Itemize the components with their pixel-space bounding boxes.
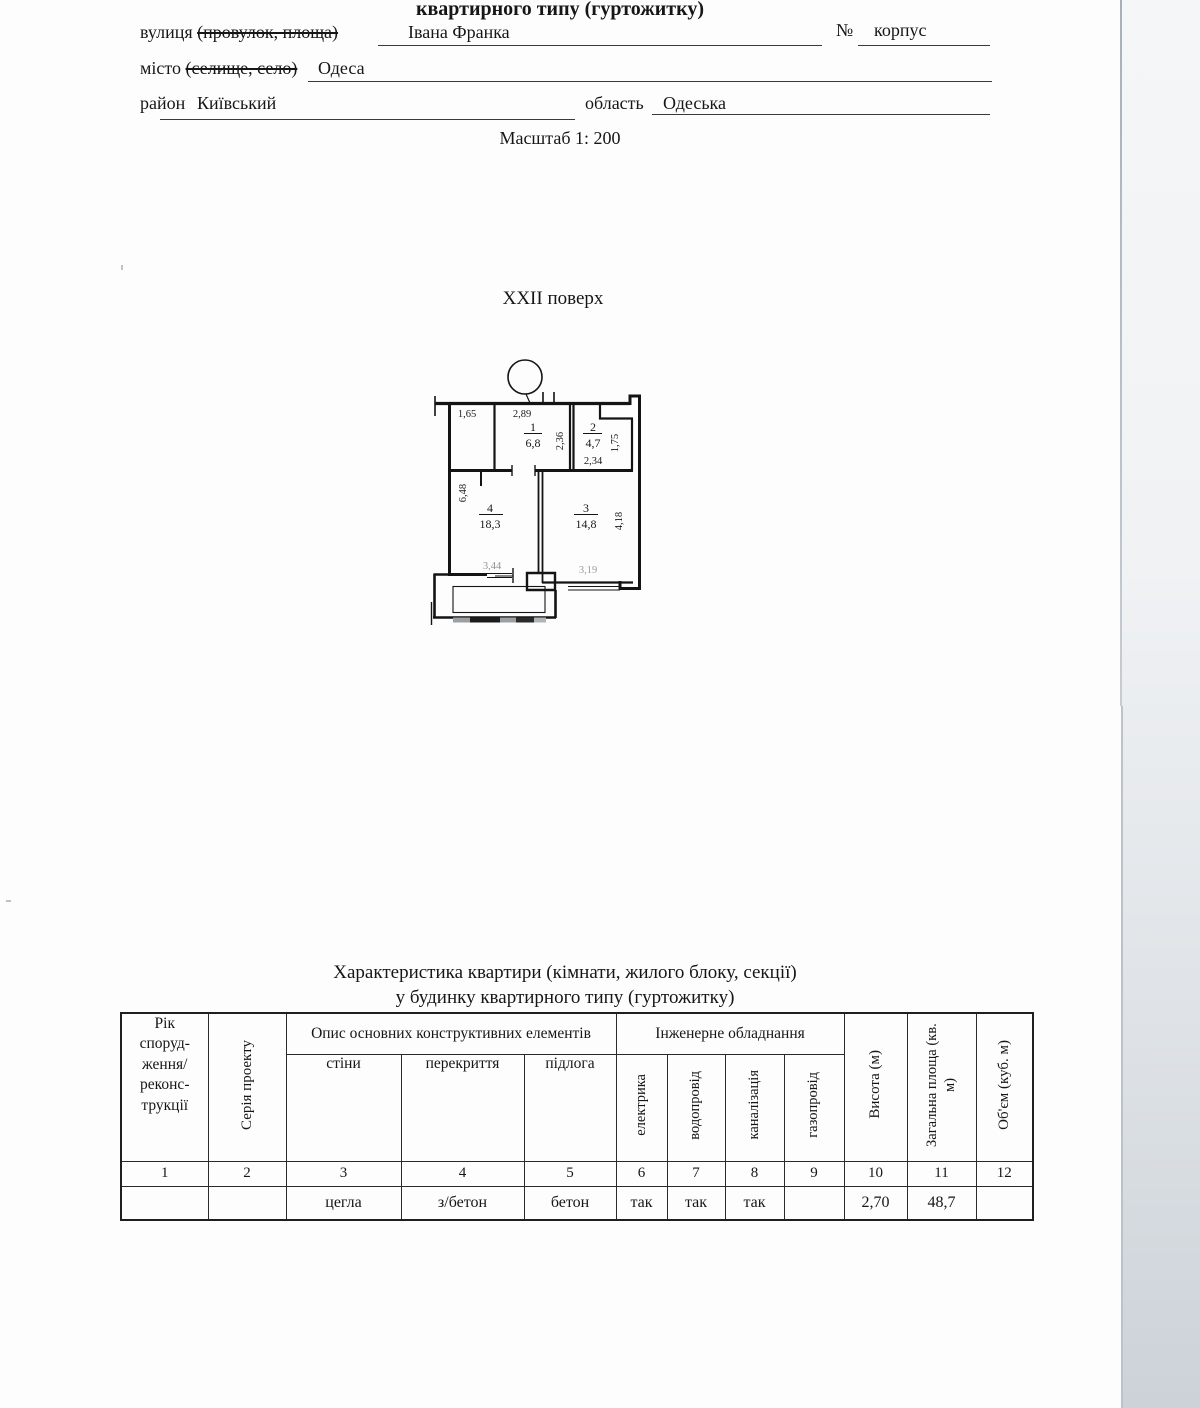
value-walls: цегла: [286, 1186, 401, 1220]
dim-label: 4,18: [614, 512, 625, 530]
value-ceiling: з/бетон: [401, 1186, 524, 1220]
th-electric-text: електрика: [634, 1074, 650, 1136]
th-construct-group: Опис основних конструктивних елементів: [286, 1013, 616, 1054]
th-gas-text: газопровід: [806, 1072, 822, 1138]
street-label: вулиця (провулок, площа): [140, 22, 338, 43]
city-underline: [308, 81, 992, 82]
scan-artifact: [121, 265, 123, 270]
th-volume: Об'єм (куб. м): [976, 1013, 1033, 1161]
dim-label: 1,65: [458, 409, 476, 420]
dim-label: 1,75: [610, 434, 621, 452]
values-row: цегла з/бетон бетон так так так 2,70 48,…: [121, 1186, 1033, 1220]
th-electric: електрика: [616, 1054, 667, 1161]
scale-label: Масштаб 1: 200: [460, 128, 660, 149]
th-height-text: Висота (м): [867, 1050, 884, 1119]
oblast-value: Одеська: [663, 93, 726, 114]
oblast-label: область: [585, 93, 644, 114]
oblast-underline: [652, 114, 990, 115]
col-number: 8: [725, 1161, 784, 1186]
value-height: 2,70: [844, 1186, 907, 1220]
city-label-word: місто: [140, 58, 181, 78]
th-volume-text: Об'єм (куб. м): [996, 1040, 1013, 1130]
th-engineering-group: Інженерне обладнання: [616, 1013, 844, 1054]
room2-number: 2: [590, 420, 596, 434]
street-value: Івана Франка: [408, 22, 510, 43]
th-sewer: каналізація: [725, 1054, 784, 1161]
document-title: квартирного типу (гуртожитку): [300, 0, 820, 21]
dim-label: 2,36: [555, 432, 566, 450]
floor-plan-drawing: 1,65 2,89 1 6,8 2,36 2 4,7 2,34 1,75 6,4…: [420, 340, 670, 650]
city-label: місто (селище, село): [140, 58, 297, 79]
value-water: так: [667, 1186, 725, 1220]
page-edge-line: [1120, 0, 1122, 706]
th-floor: підлога: [524, 1054, 616, 1161]
room1-area: 6,8: [526, 436, 541, 450]
value-electric: так: [616, 1186, 667, 1220]
value-sewer: так: [725, 1186, 784, 1220]
number-label: №: [836, 20, 853, 41]
th-series-text: Серія проекту: [239, 1040, 256, 1130]
floor-title: XXII поверх: [453, 288, 653, 310]
window-lines-room3: [568, 587, 620, 591]
room4-area: 18,3: [480, 517, 501, 531]
korpus-underline: [858, 45, 990, 46]
district-value: Київський: [197, 93, 276, 114]
col-number: 1: [121, 1161, 208, 1186]
street-underline: [378, 45, 822, 46]
page-edge-line-lower: [1121, 706, 1123, 1408]
scan-artifact: [6, 900, 11, 902]
table-title-line1: Характеристика квартири (кімнати, жилого…: [265, 962, 865, 984]
th-series: Серія проекту: [208, 1013, 286, 1161]
room1-number: 1: [530, 420, 536, 434]
col-number: 2: [208, 1161, 286, 1186]
col-number: 11: [907, 1161, 976, 1186]
col-number: 7: [667, 1161, 725, 1186]
th-sewer-text: каналізація: [747, 1070, 763, 1139]
table-title-line2: у будинку квартирного типу (гуртожитку): [265, 987, 865, 1009]
th-total-area: Загальна площа (кв. м): [907, 1013, 976, 1161]
city-struck-words: (селище, село): [186, 58, 298, 78]
value-total-area: 48,7: [907, 1186, 976, 1220]
korpus-label: корпус: [874, 20, 926, 41]
room3-area: 14,8: [576, 517, 597, 531]
col-number: 4: [401, 1161, 524, 1186]
th-ceiling: перекриття: [401, 1054, 524, 1161]
th-height: Висота (м): [844, 1013, 907, 1161]
dim-label: 3,44: [483, 561, 502, 572]
district-label: район: [140, 93, 185, 114]
column-number-row: 1 2 3 4 5 6 7 8 9 10 11 12: [121, 1161, 1033, 1186]
col-number: 3: [286, 1161, 401, 1186]
col-number: 6: [616, 1161, 667, 1186]
value-volume: [976, 1186, 1033, 1220]
value-floor: бетон: [524, 1186, 616, 1220]
city-value: Одеса: [318, 58, 365, 79]
value-year: [121, 1186, 208, 1220]
th-water-text: водопровід: [688, 1071, 704, 1140]
value-series: [208, 1186, 286, 1220]
dim-label: 3,19: [579, 565, 597, 576]
page-edge-shading: [1122, 0, 1200, 1408]
room3-number: 3: [583, 501, 589, 515]
col-number: 10: [844, 1161, 907, 1186]
dim-label: 6,48: [458, 484, 469, 502]
th-year: Рік споруд- ження/ реконс- трукції: [121, 1013, 208, 1161]
value-gas: [784, 1186, 844, 1220]
room2-area: 4,7: [586, 436, 601, 450]
balcony-hatch: [453, 618, 546, 623]
street-label-word: вулиця: [140, 22, 193, 42]
col-number: 5: [524, 1161, 616, 1186]
th-total-area-text: Загальна площа (кв. м): [923, 1017, 959, 1153]
dim-label: 2,89: [513, 409, 531, 420]
district-underline: [160, 119, 575, 120]
entry-door-ticks: [543, 392, 554, 403]
street-struck-words: (провулок, площа): [197, 22, 338, 42]
col-number: 9: [784, 1161, 844, 1186]
col-number: 12: [976, 1161, 1033, 1186]
ventilation-shaft-circle: [508, 360, 542, 394]
dim-label: 2,34: [584, 456, 603, 467]
room4-number: 4: [487, 501, 493, 515]
th-gas: газопровід: [784, 1054, 844, 1161]
scanned-document-page: квартирного типу (гуртожитку) вулиця (пр…: [0, 0, 1200, 1408]
balcony-outline: [433, 574, 556, 618]
characteristics-table: Рік споруд- ження/ реконс- трукції Серія…: [120, 1012, 1034, 1221]
th-walls: стіни: [286, 1054, 401, 1161]
th-water: водопровід: [667, 1054, 725, 1161]
